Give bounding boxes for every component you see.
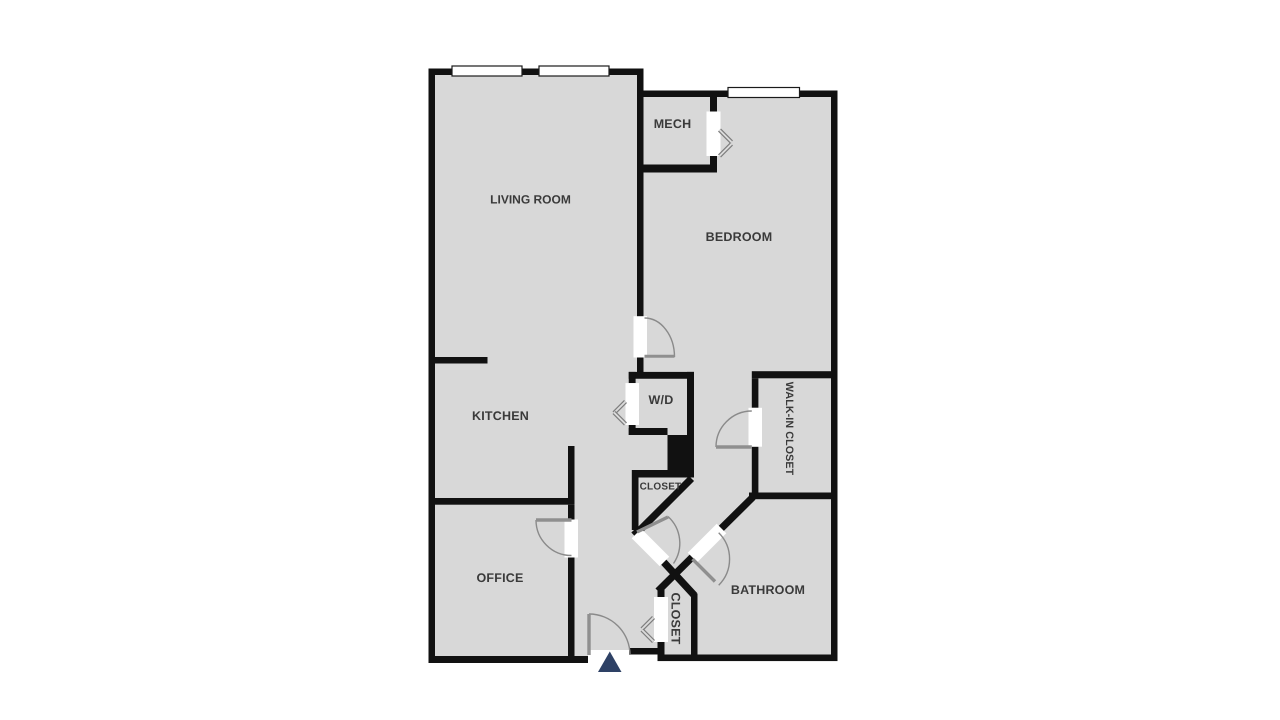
svg-text:WALK-IN CLOSET: WALK-IN CLOSET — [783, 382, 795, 476]
svg-text:KITCHEN: KITCHEN — [472, 409, 529, 423]
svg-text:CLOSET: CLOSET — [640, 482, 682, 493]
svg-text:CLOSET: CLOSET — [669, 593, 683, 645]
svg-text:BATHROOM: BATHROOM — [731, 583, 805, 597]
svg-text:LIVING ROOM: LIVING ROOM — [490, 193, 571, 207]
svg-text:W/D: W/D — [649, 393, 674, 407]
svg-text:OFFICE: OFFICE — [476, 571, 523, 585]
svg-text:MECH: MECH — [654, 117, 692, 131]
svg-text:BEDROOM: BEDROOM — [706, 230, 773, 244]
